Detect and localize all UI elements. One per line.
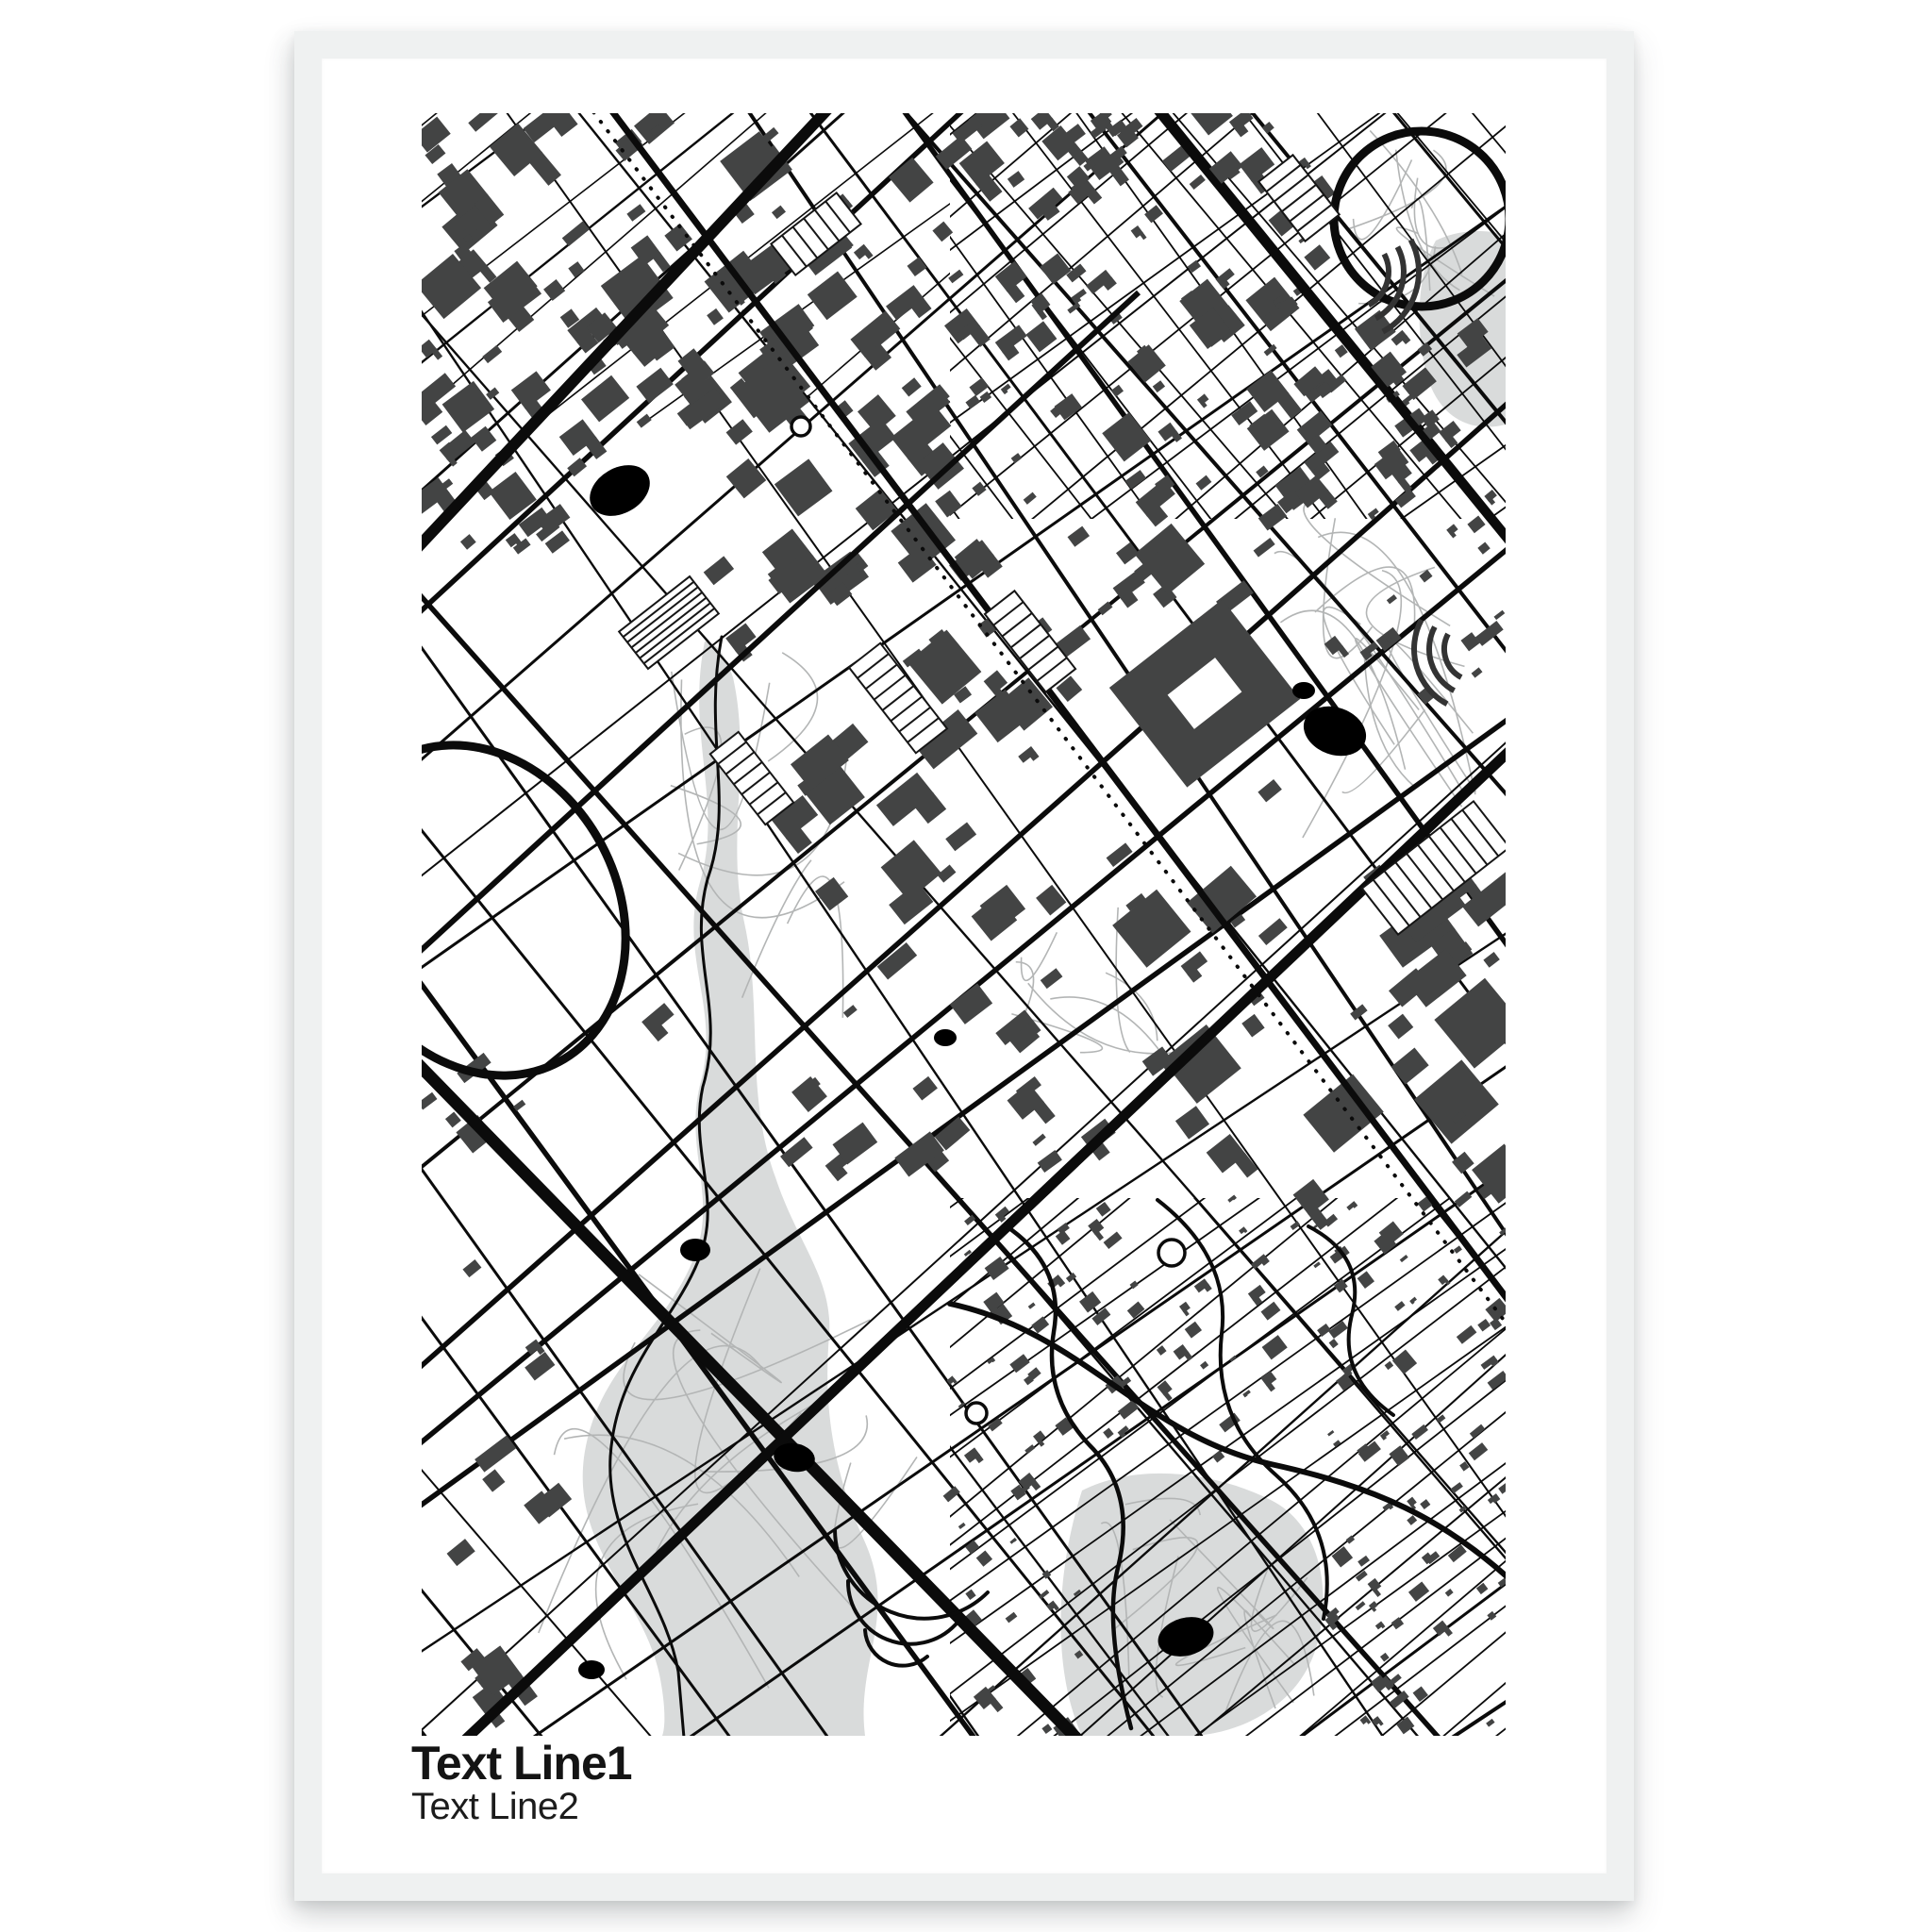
- city-map: [422, 113, 1506, 1736]
- poster-text-line1: Text Line1: [411, 1740, 632, 1787]
- poster-frame: Text Line1 Text Line2: [294, 31, 1634, 1901]
- scene-background: Text Line1 Text Line2: [0, 0, 1932, 1932]
- poster-text-line2: Text Line2: [411, 1788, 578, 1825]
- poster-print: Text Line1 Text Line2: [322, 58, 1607, 1874]
- map-svg: [422, 113, 1506, 1736]
